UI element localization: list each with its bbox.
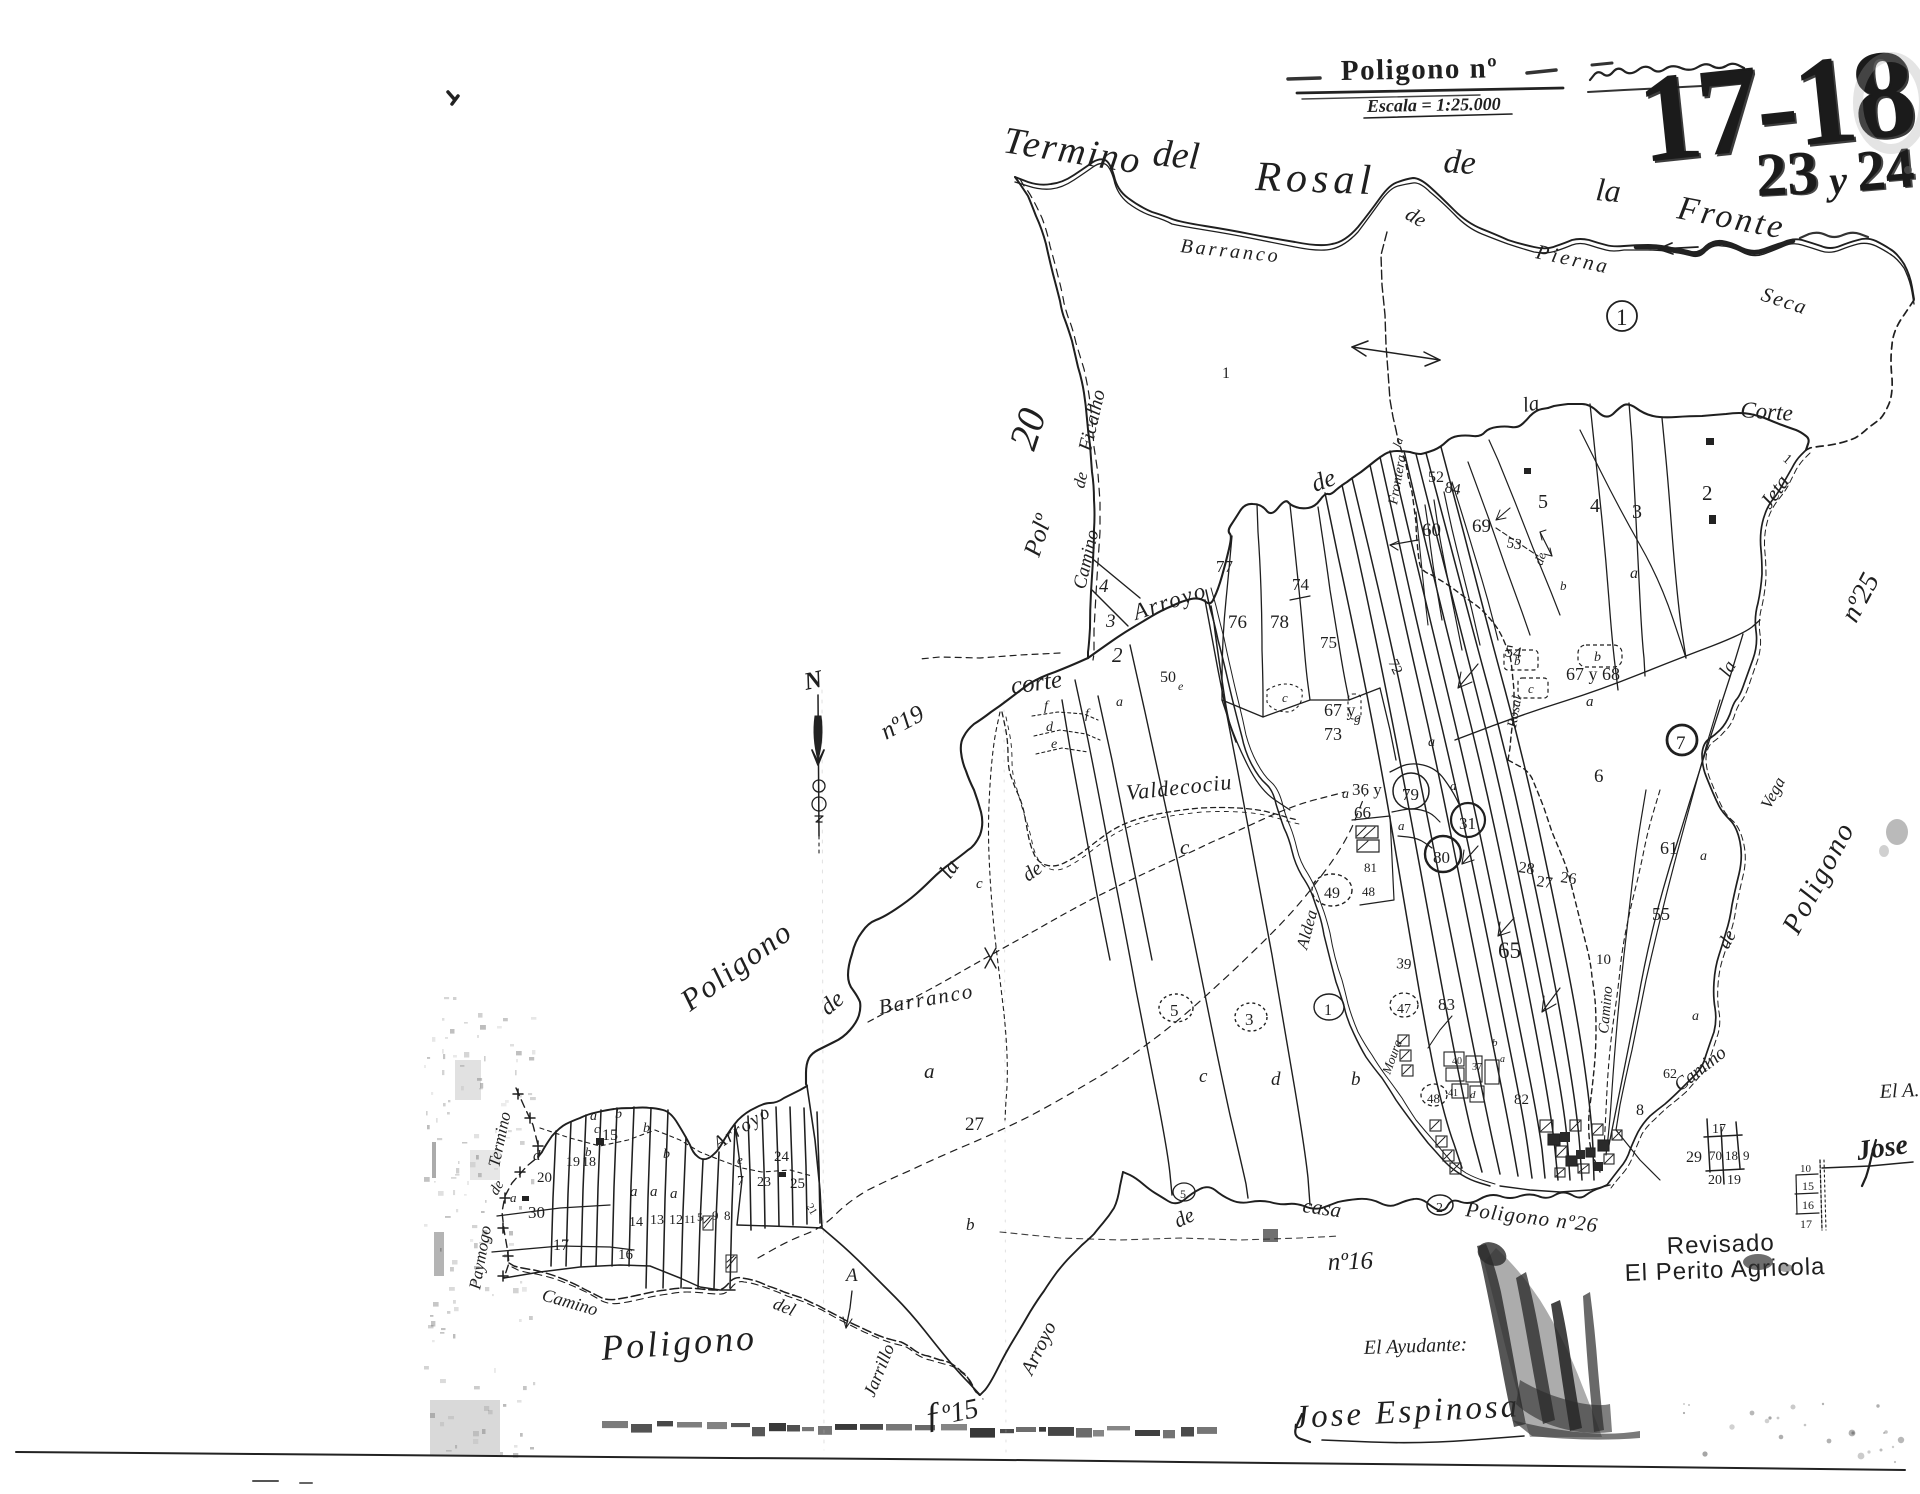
svg-text:a: a xyxy=(924,1059,935,1083)
svg-text:48: 48 xyxy=(1362,884,1375,899)
svg-text:b: b xyxy=(1560,578,1567,593)
svg-text:25: 25 xyxy=(790,1176,805,1192)
svg-text:a: a xyxy=(1428,735,1435,750)
svg-text:a: a xyxy=(1630,565,1638,582)
svg-text:10: 10 xyxy=(1596,952,1611,968)
svg-text:a: a xyxy=(630,1184,638,1200)
svg-text:a: a xyxy=(1398,818,1405,833)
svg-text:73: 73 xyxy=(1324,724,1342,744)
svg-text:b: b xyxy=(1514,653,1521,668)
svg-text:3: 3 xyxy=(1245,1010,1254,1029)
svg-text:47: 47 xyxy=(1397,1002,1411,1017)
svg-text:8: 8 xyxy=(1636,1102,1644,1119)
svg-text:El Ayudante:: El Ayudante: xyxy=(1362,1333,1467,1359)
svg-text:23: 23 xyxy=(1756,140,1821,211)
svg-text:7: 7 xyxy=(737,1174,744,1189)
svg-text:a: a xyxy=(1116,695,1123,710)
svg-text:c: c xyxy=(594,1121,600,1136)
svg-text:5: 5 xyxy=(1170,1001,1179,1020)
svg-text:79: 79 xyxy=(1402,785,1419,804)
svg-text:e: e xyxy=(1178,679,1184,693)
svg-text:d: d xyxy=(533,1148,541,1164)
svg-text:b: b xyxy=(1492,1037,1498,1049)
svg-text:12: 12 xyxy=(669,1213,683,1228)
svg-text:Poligono nº: Poligono nº xyxy=(1341,52,1499,87)
svg-text:d: d xyxy=(1470,1089,1476,1101)
svg-text:19: 19 xyxy=(1727,1173,1741,1188)
svg-text:Rosal: Rosal xyxy=(1254,154,1377,204)
svg-text:b: b xyxy=(1594,650,1601,665)
svg-text:a: a xyxy=(510,1190,517,1205)
svg-text:20: 20 xyxy=(537,1170,552,1186)
svg-text:82: 82 xyxy=(1514,1092,1529,1108)
svg-text:2: 2 xyxy=(1436,1201,1443,1216)
svg-text:77: 77 xyxy=(1216,557,1234,576)
svg-text:a: a xyxy=(670,1186,678,1202)
svg-text:del: del xyxy=(1151,132,1201,178)
svg-text:c: c xyxy=(1180,835,1190,859)
svg-text:65: 65 xyxy=(1498,938,1521,963)
svg-text:17: 17 xyxy=(1800,1217,1812,1231)
svg-text:9: 9 xyxy=(1743,1148,1750,1163)
svg-text:a: a xyxy=(1450,778,1457,793)
svg-text:27: 27 xyxy=(965,1114,984,1135)
svg-text:31: 31 xyxy=(1459,814,1476,833)
svg-text:4: 4 xyxy=(1099,576,1109,597)
svg-text:6: 6 xyxy=(1594,766,1604,787)
svg-text:49: 49 xyxy=(1324,885,1340,902)
svg-text:84: 84 xyxy=(1443,479,1462,499)
svg-text:70: 70 xyxy=(1709,1148,1722,1163)
svg-text:c: c xyxy=(1528,681,1534,696)
svg-text:27: 27 xyxy=(1535,873,1553,892)
svg-text:20: 20 xyxy=(1708,1173,1722,1188)
svg-text:3: 3 xyxy=(1105,611,1116,632)
svg-text:b: b xyxy=(663,1147,670,1162)
svg-text:3: 3 xyxy=(1632,501,1642,523)
svg-text:36 y: 36 y xyxy=(1352,780,1382,799)
svg-text:74: 74 xyxy=(1292,575,1310,594)
svg-text:10: 10 xyxy=(1800,1163,1812,1175)
svg-text:17: 17 xyxy=(553,1237,569,1254)
svg-text:a: a xyxy=(1342,787,1349,802)
svg-text:d: d xyxy=(1271,1069,1281,1090)
svg-text:16: 16 xyxy=(1802,1198,1814,1212)
svg-text:17: 17 xyxy=(1712,1122,1726,1137)
svg-text:37: 37 xyxy=(1472,1062,1482,1073)
svg-text:la: la xyxy=(1594,171,1622,209)
svg-text:75: 75 xyxy=(1320,633,1337,652)
svg-text:30: 30 xyxy=(528,1203,545,1222)
svg-text:4: 4 xyxy=(1590,495,1600,517)
svg-text:40: 40 xyxy=(1452,1056,1462,1067)
svg-text:16: 16 xyxy=(618,1247,634,1263)
svg-text:83: 83 xyxy=(1438,995,1455,1014)
svg-text:5: 5 xyxy=(1180,1187,1186,1201)
svg-text:b: b xyxy=(1351,1069,1361,1090)
svg-text:69: 69 xyxy=(1472,516,1491,537)
svg-text:c: c xyxy=(1199,1066,1208,1087)
svg-text:13: 13 xyxy=(650,1213,664,1228)
svg-text:78: 78 xyxy=(1270,612,1289,633)
svg-text:18: 18 xyxy=(1725,1148,1738,1163)
svg-text:11: 11 xyxy=(684,1212,696,1226)
svg-text:1: 1 xyxy=(1616,305,1628,330)
svg-text:Corte: Corte xyxy=(1740,397,1794,426)
svg-text:e: e xyxy=(737,1152,743,1167)
svg-text:2: 2 xyxy=(1702,481,1713,505)
svg-text:19: 19 xyxy=(566,1155,580,1170)
svg-text:1: 1 xyxy=(1222,365,1230,382)
svg-text:67 y 68: 67 y 68 xyxy=(1566,664,1620,684)
svg-text:7: 7 xyxy=(1676,733,1686,754)
svg-text:b: b xyxy=(585,1144,592,1159)
svg-text:a: a xyxy=(1500,1054,1505,1065)
svg-text:15: 15 xyxy=(602,1127,618,1144)
svg-text:52: 52 xyxy=(1428,469,1444,486)
svg-text:50: 50 xyxy=(1160,669,1176,686)
svg-text:23: 23 xyxy=(757,1175,771,1190)
svg-text:a: a xyxy=(1692,1009,1699,1024)
svg-text:b: b xyxy=(643,1121,650,1136)
svg-text:nº16: nº16 xyxy=(1327,1247,1374,1276)
svg-text:48: 48 xyxy=(1427,1091,1440,1106)
svg-text:76: 76 xyxy=(1228,612,1247,633)
svg-text:b: b xyxy=(966,1215,975,1234)
svg-text:81: 81 xyxy=(1364,860,1377,875)
svg-text:A: A xyxy=(844,1265,858,1286)
svg-text:15: 15 xyxy=(1802,1179,1814,1193)
svg-text:2: 2 xyxy=(1112,643,1123,667)
svg-text:a: a xyxy=(1586,694,1594,710)
svg-text:80: 80 xyxy=(1433,848,1450,867)
svg-text:24: 24 xyxy=(774,1149,790,1165)
svg-text:b: b xyxy=(615,1107,622,1122)
svg-text:8: 8 xyxy=(724,1208,731,1223)
svg-text:28: 28 xyxy=(1517,859,1535,878)
svg-text:1: 1 xyxy=(1324,1002,1332,1019)
svg-text:a: a xyxy=(1700,849,1707,864)
svg-text:29: 29 xyxy=(1686,1149,1702,1166)
svg-text:14: 14 xyxy=(629,1215,643,1230)
svg-text:5: 5 xyxy=(697,1210,703,1224)
svg-text:60: 60 xyxy=(1422,520,1441,541)
svg-text:Escala = 1:25.000: Escala = 1:25.000 xyxy=(1366,94,1501,116)
svg-text:c: c xyxy=(976,876,983,892)
svg-text:41: 41 xyxy=(1448,1088,1458,1099)
svg-text:c: c xyxy=(1282,690,1288,705)
svg-text:39: 39 xyxy=(1396,956,1412,973)
svg-text:26: 26 xyxy=(1559,869,1577,888)
svg-text:67 y: 67 y xyxy=(1324,700,1356,720)
svg-text:5: 5 xyxy=(1538,491,1548,513)
svg-text:62: 62 xyxy=(1663,1067,1677,1082)
svg-text:de: de xyxy=(1442,143,1477,182)
svg-text:El A.: El A. xyxy=(1878,1079,1920,1103)
svg-text:a: a xyxy=(650,1184,658,1200)
